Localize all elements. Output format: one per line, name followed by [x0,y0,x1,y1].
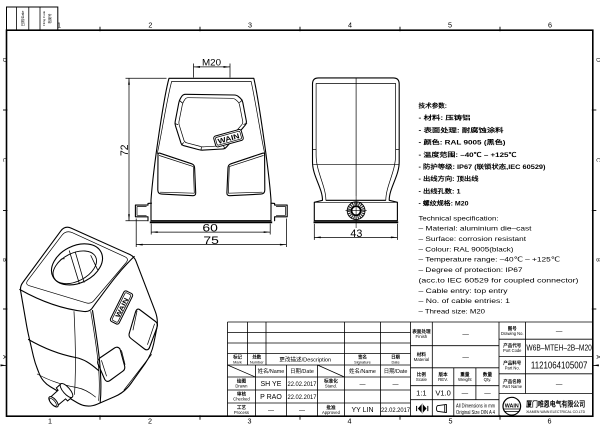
svg-text:姓名/Name: 姓名/Name [258,367,285,375]
svg-text:6: 6 [548,20,552,29]
svg-text:Part Name: Part Name [502,384,522,389]
svg-text:—: — [268,408,274,414]
svg-text:2: 2 [148,416,152,424]
svg-text:Drawing No.: Drawing No. [501,331,524,336]
svg-text:- 温度范围: –40℃ – +125℃: - 温度范围: –40℃ – +125℃ [419,151,518,159]
svg-text:75: 75 [203,235,219,247]
svg-text:WAIN: WAIN [505,403,519,409]
svg-text:5: 5 [449,416,453,424]
svg-text:4: 4 [348,20,352,29]
svg-text:A: A [1,355,7,359]
svg-text:1121064105007: 1121064105007 [531,361,588,372]
svg-text:- 材料: 压铸铝: - 材料: 压铸铝 [419,114,471,122]
svg-text:72: 72 [119,144,131,156]
svg-text:Drawn: Drawn [235,384,248,389]
svg-text:Original Size DIN A 4: Original Size DIN A 4 [456,410,495,416]
svg-text:Process: Process [234,410,249,415]
svg-text:—: — [462,331,469,338]
svg-text:5: 5 [448,20,452,29]
svg-text:– Thread size: M20: – Thread size: M20 [419,308,486,315]
svg-text:日期/Date: 日期/Date [20,11,25,27]
svg-text:D: D [595,58,600,62]
svg-text:- 螺纹规格: M20: - 螺纹规格: M20 [419,200,470,208]
svg-text:Finish: Finish [416,334,428,339]
svg-text:—: — [393,382,399,388]
svg-text:—: — [462,354,469,361]
svg-text:– Temperature range: –40℃ – +1: – Temperature range: –40℃ – +125℃ [419,257,561,264]
svg-text:22.02.2017: 22.02.2017 [288,381,317,388]
svg-text:– Degree of protection: IP67: – Degree of protection: IP67 [419,267,523,274]
svg-text:All Dimensions in mm: All Dimensions in mm [456,404,495,410]
svg-text:D: D [1,58,7,62]
svg-text:2: 2 [148,20,152,29]
svg-text:3: 3 [248,20,252,29]
svg-text:厦门唯恩电气有限公司: 厦门唯恩电气有限公司 [525,400,585,409]
svg-text:6: 6 [548,416,552,424]
svg-text:Technical specification:: Technical specification: [419,215,499,222]
svg-text:Filing Code: Filing Code [42,11,46,27]
svg-text:– Material: aluminium die–cast: – Material: aluminium die–cast [419,226,532,233]
svg-text:—: — [556,328,563,335]
svg-text:档案号: 档案号 [47,13,52,24]
svg-text:W6B–MTEH–2B–M20: W6B–MTEH–2B–M20 [526,343,592,353]
svg-text:Port Code: Port Code [503,348,522,353]
svg-text:(acc.to IEC 60529 for coupled: (acc.to IEC 60529 for coupled connector) [419,277,579,284]
svg-text:—: — [484,390,491,397]
svg-text:P RAO: P RAO [260,394,282,401]
svg-text:B: B [595,258,600,262]
svg-text:—: — [556,381,563,388]
svg-text:– Cable entry: top entry: – Cable entry: top entry [419,288,509,295]
svg-text:更改描述/Description: 更改描述/Description [279,355,331,363]
svg-text:技术参数:: 技术参数: [419,102,448,110]
svg-text:– Surface: corrosion resistant: – Surface: corrosion resistant [419,236,527,243]
svg-text:60: 60 [202,223,218,235]
svg-text:Number: Number [250,359,265,364]
svg-text:- 出线孔数: 1: - 出线孔数: 1 [419,187,462,195]
svg-text:1: 1 [48,416,52,424]
svg-text:Checked: Checked [233,397,250,402]
svg-text:日期/Date: 日期/Date [384,368,408,375]
svg-text:—: — [360,382,366,388]
svg-text:Part No.: Part No. [505,365,520,370]
svg-text:日期/Date: 日期/Date [290,368,314,375]
svg-text:—: — [299,408,305,414]
svg-text:—: — [462,390,469,397]
svg-text:22.02.2017: 22.02.2017 [381,407,410,414]
svg-text:1:1: 1:1 [416,388,426,397]
svg-text:B: B [1,258,7,262]
svg-text:- 表面处理: 耐腐蚀涂料: - 表面处理: 耐腐蚀涂料 [419,126,505,134]
svg-text:Stand.: Stand. [325,384,337,389]
svg-text:姓名/Name: 姓名/Name [349,367,376,375]
svg-text:Material: Material [414,357,430,362]
svg-text:- 出线方向: 顶出线: - 出线方向: 顶出线 [419,175,480,183]
svg-text:- 颜色: RAL 9005 (黑色): - 颜色: RAL 9005 (黑色) [419,139,506,147]
svg-text:Scale: Scale [416,377,428,382]
svg-text:Date: Date [391,359,399,364]
svg-text:C: C [595,158,600,162]
svg-text:C: C [1,158,7,162]
svg-text:Weight: Weight [458,377,472,382]
svg-text:– No. of cable entries: 1: – No. of cable entries: 1 [419,298,511,305]
svg-text:Approved: Approved [322,410,341,415]
svg-text:22.02.2017: 22.02.2017 [288,394,317,401]
svg-text:YY LIN: YY LIN [351,407,373,414]
svg-text:Mark: Mark [233,359,242,364]
svg-text:REV.: REV. [438,377,448,382]
svg-text:43: 43 [350,228,362,240]
svg-text:V1.0: V1.0 [435,388,450,397]
svg-text:XIAMEN WAIN ELECTRICAL CO.LTD: XIAMEN WAIN ELECTRICAL CO.LTD [526,409,585,414]
svg-text:4: 4 [348,416,352,424]
svg-text:SH YE: SH YE [261,381,282,388]
svg-text:M20: M20 [202,57,221,67]
svg-text:Qty.: Qty. [484,377,492,382]
svg-text:– Colour: RAL 9005(black): – Colour: RAL 9005(black) [419,246,514,253]
svg-text:3: 3 [248,416,252,424]
svg-text:A: A [595,355,600,359]
svg-text:Signature: Signature [354,359,371,364]
svg-text:- 防护等级: IP67 (联锁状态,IEC 60529): - 防护等级: IP67 (联锁状态,IEC 60529) [419,163,546,171]
